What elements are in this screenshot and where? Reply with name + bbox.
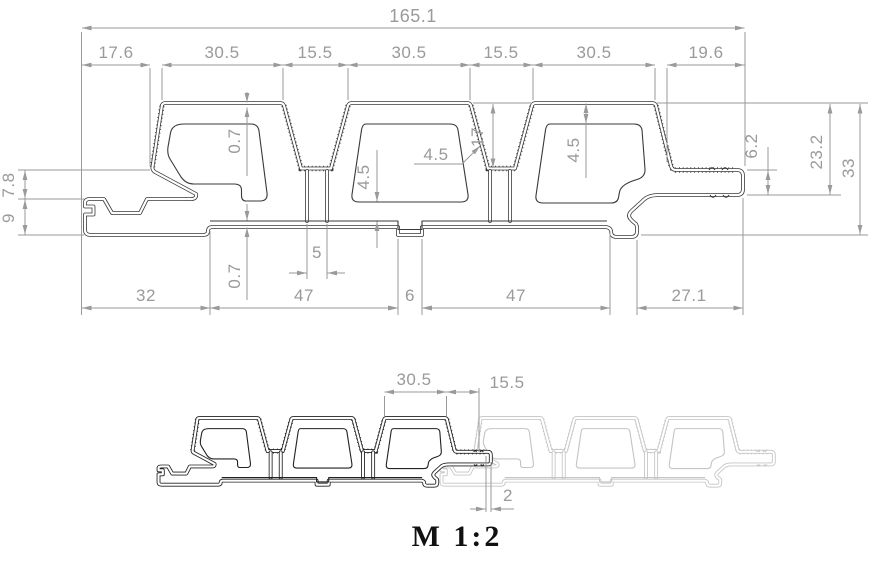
dim-bottom-1: 47	[294, 286, 314, 305]
dim-bottom-2: 6	[405, 286, 415, 305]
dim-wall-right: 4.5	[564, 137, 583, 162]
dim-tongue-to-top: 23.2	[807, 134, 826, 169]
dim-tongue-thickness: 6.2	[742, 133, 761, 158]
dim-chain-1: 30.5	[204, 43, 239, 62]
drawing-sheet: 165.1 17.6 30.5 15.5 30.5 15.5 30.5 19.6…	[0, 0, 875, 565]
dim-left-lower: 9	[0, 213, 18, 223]
dim-skin-bottom: 0.7	[225, 263, 244, 288]
top-view-dimension-texts: 165.1 17.6 30.5 15.5 30.5 15.5 30.5 19.6…	[0, 6, 858, 305]
dim-chain-5: 30.5	[576, 43, 611, 62]
dim-chain-0: 17.6	[98, 43, 133, 62]
dim-bottom-4: 27.1	[671, 286, 706, 305]
dim-chain-2: 15.5	[297, 43, 332, 62]
dim-left-upper: 7.8	[0, 172, 18, 197]
dim-asm-joint-gap: 2	[503, 486, 513, 505]
dim-bottom-0: 32	[136, 286, 156, 305]
top-section-view: 165.1 17.6 30.5 15.5 30.5 15.5 30.5 19.6…	[0, 6, 868, 315]
dim-wall-left: 4.5	[354, 164, 373, 189]
dim-asm-rib-width: 30.5	[396, 370, 431, 389]
assembly-view: 30.5 15.5 2 M 1:2	[159, 370, 774, 553]
dim-skin-top: 0.7	[225, 128, 244, 153]
dim-overall-width: 165.1	[389, 6, 437, 26]
dim-chain-4: 15.5	[483, 43, 518, 62]
dim-chain-3: 30.5	[391, 43, 426, 62]
dim-wall-mid: 4.5	[423, 145, 448, 164]
profile-section-main	[85, 103, 743, 237]
technical-drawing-canvas: 165.1 17.6 30.5 15.5 30.5 15.5 30.5 19.6…	[0, 0, 875, 565]
dim-overall-height: 33	[839, 158, 858, 178]
scale-label: M 1:2	[412, 520, 503, 553]
dim-chain-6: 19.6	[688, 43, 723, 62]
dim-support-width: 5	[312, 243, 322, 262]
dim-groove-depth: 17	[468, 127, 487, 147]
dim-asm-groove-width: 15.5	[489, 373, 524, 392]
dim-bottom-3: 47	[506, 286, 526, 305]
